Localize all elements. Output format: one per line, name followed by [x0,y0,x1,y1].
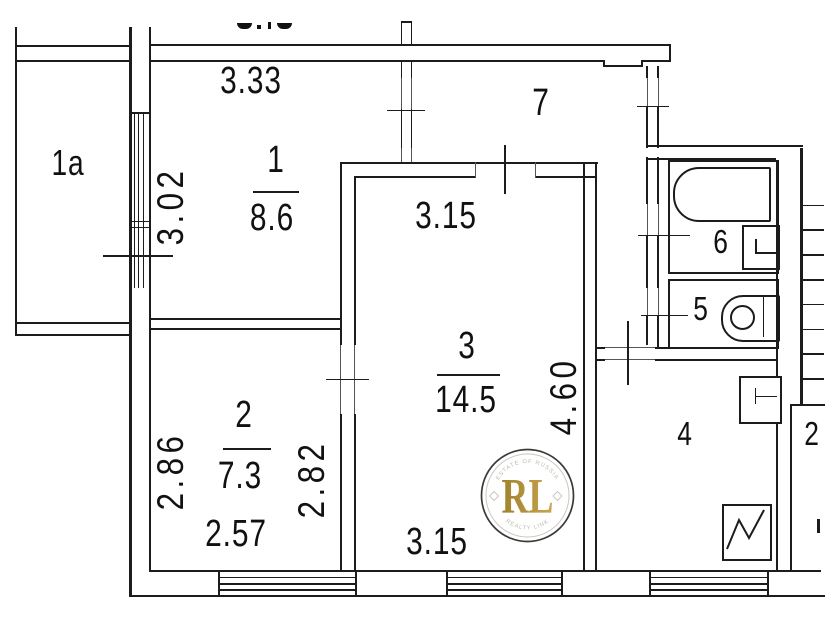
svg-text:RL: RL [502,468,554,524]
